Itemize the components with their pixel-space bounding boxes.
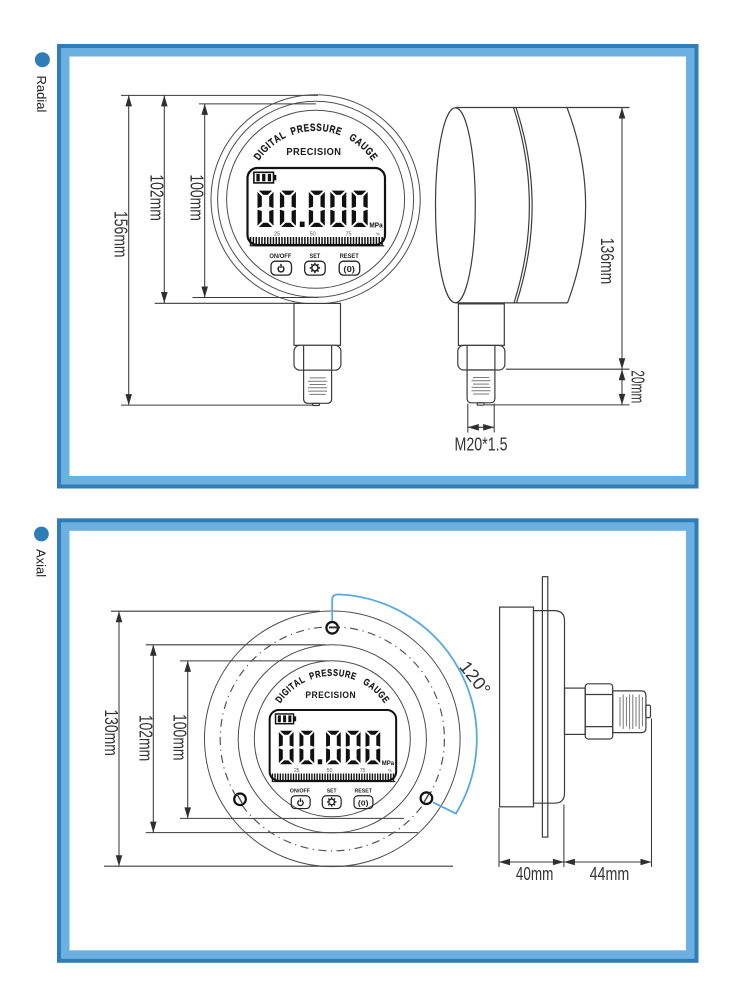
svg-text:25: 25 (274, 232, 280, 238)
svg-text:PRECISION: PRECISION (286, 147, 341, 158)
svg-text:136mm: 136mm (597, 238, 617, 285)
svg-text:ON/OFF: ON/OFF (269, 253, 291, 260)
svg-text:50: 50 (310, 232, 316, 238)
svg-text:100mm: 100mm (187, 174, 207, 221)
svg-text:SET: SET (310, 253, 321, 260)
svg-text:75: 75 (345, 232, 351, 238)
svg-text:%: % (376, 232, 380, 237)
svg-text:M20*1.5: M20*1.5 (455, 435, 508, 455)
svg-text:102mm: 102mm (146, 174, 166, 221)
svg-text:100mm: 100mm (170, 714, 190, 761)
svg-text:Axial: Axial (33, 549, 48, 577)
svg-text:RESET: RESET (340, 253, 359, 260)
svg-text:MPa: MPa (369, 221, 383, 230)
svg-text:20mm: 20mm (628, 370, 648, 403)
svg-text:44mm: 44mm (590, 864, 630, 884)
svg-text:Radial: Radial (34, 76, 49, 113)
svg-text:(0): (0) (343, 265, 355, 274)
svg-text:S: S (310, 121, 316, 133)
svg-text:156mm: 156mm (111, 211, 131, 257)
svg-text:40mm: 40mm (516, 864, 553, 884)
svg-text:130mm: 130mm (101, 709, 121, 756)
svg-text:102mm: 102mm (135, 715, 155, 762)
svg-text:S: S (316, 121, 322, 134)
